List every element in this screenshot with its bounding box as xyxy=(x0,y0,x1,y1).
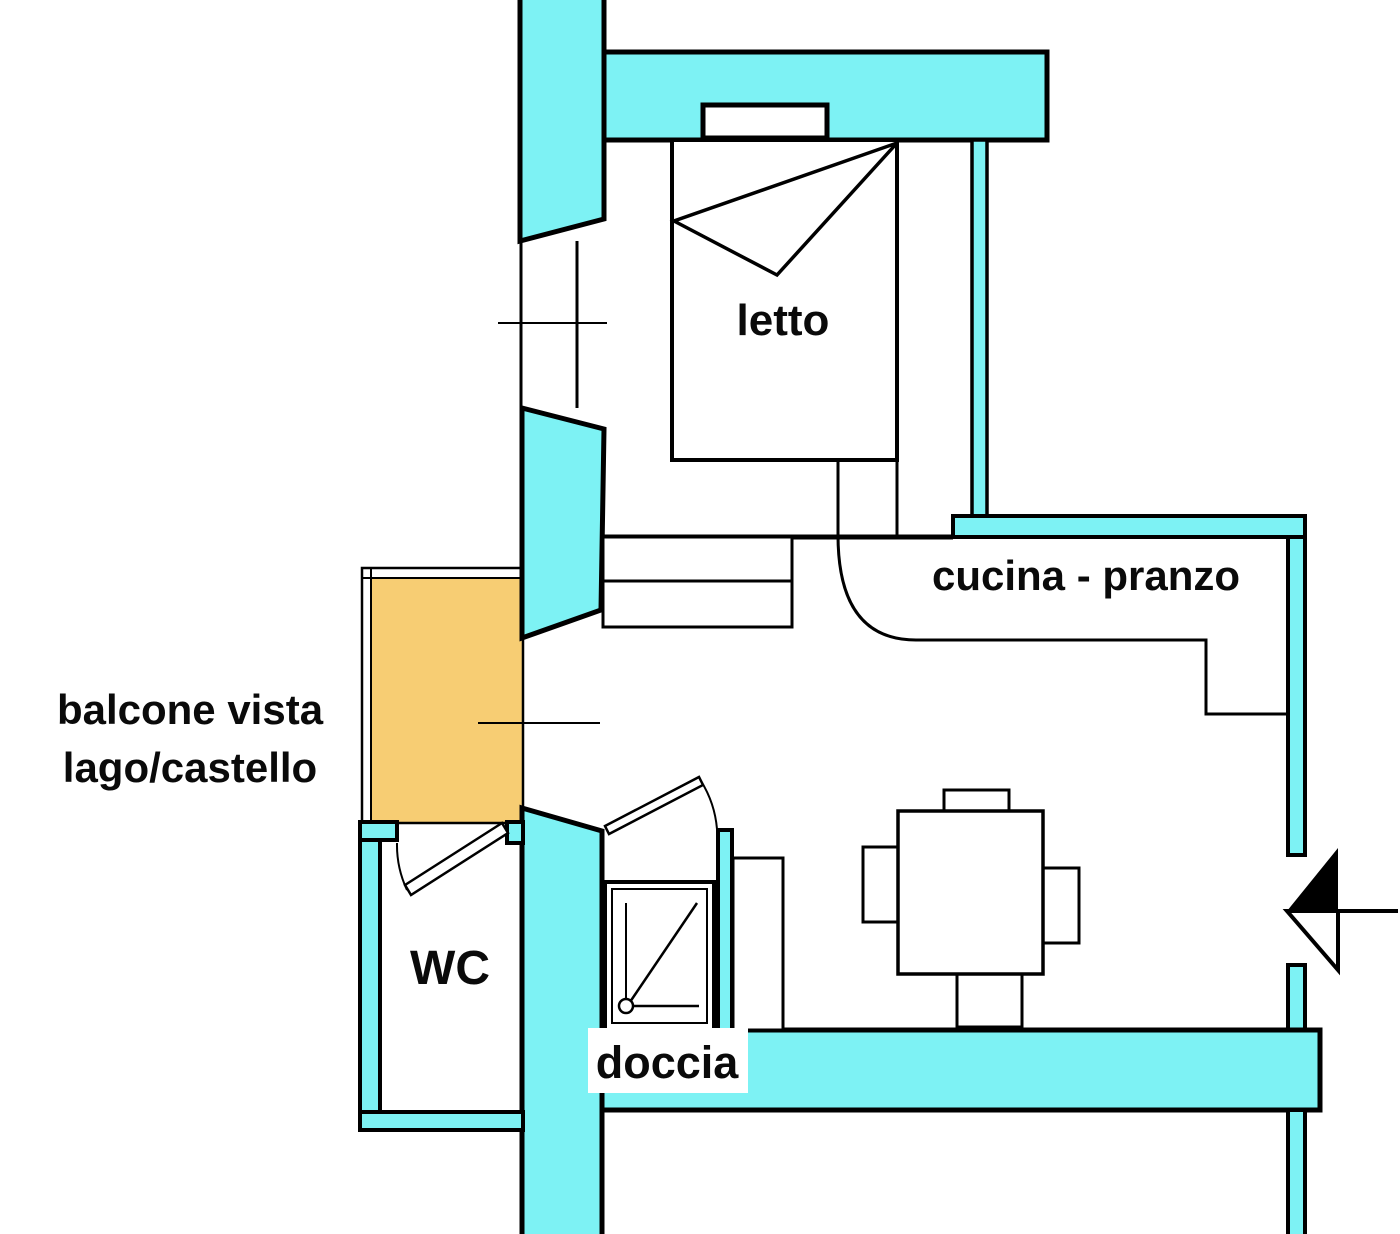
chair-bottom xyxy=(957,974,1022,1027)
wall-kitchen-thin-vertical xyxy=(972,140,987,522)
chair-right xyxy=(1043,868,1079,943)
balcony-label-line2: lago/castello xyxy=(63,744,317,791)
wall-top-left xyxy=(520,0,604,241)
bedroom-label: letto xyxy=(737,296,830,345)
wall-right-entry-stub xyxy=(1288,965,1305,1030)
shower-label: doccia xyxy=(596,1037,740,1088)
shower-drain xyxy=(619,999,633,1013)
wall-shower-right xyxy=(718,830,732,1032)
dining-table xyxy=(898,811,1043,974)
dresser-bottom xyxy=(603,581,792,627)
bed-pillow xyxy=(703,105,827,138)
wall-right-lower xyxy=(1288,1110,1305,1234)
floor-plan-canvas: letto cucina - pranzo balcone vista lago… xyxy=(0,0,1400,1234)
wall-wc-door-jamb xyxy=(507,822,523,843)
chair-left xyxy=(863,847,898,922)
wall-kitchen-top xyxy=(953,516,1305,537)
wall-right-upper xyxy=(1288,537,1305,855)
kitchen-label: cucina - pranzo xyxy=(932,552,1240,599)
wc-label: WC xyxy=(410,942,490,995)
floor-plan: letto cucina - pranzo balcone vista lago… xyxy=(0,0,1400,1234)
wall-wc-left xyxy=(360,822,380,1130)
balcony-floor xyxy=(371,578,522,822)
wall-mid-left xyxy=(522,408,604,638)
wall-wc-top-piece xyxy=(360,822,397,840)
dresser-top xyxy=(603,537,792,581)
chair-top xyxy=(944,790,1009,811)
wall-wc-bottom xyxy=(360,1112,523,1130)
bathroom-cabinet xyxy=(733,858,783,1030)
balcony-label-line1: balcone vista xyxy=(57,686,324,733)
wall-central-column xyxy=(522,808,602,1234)
